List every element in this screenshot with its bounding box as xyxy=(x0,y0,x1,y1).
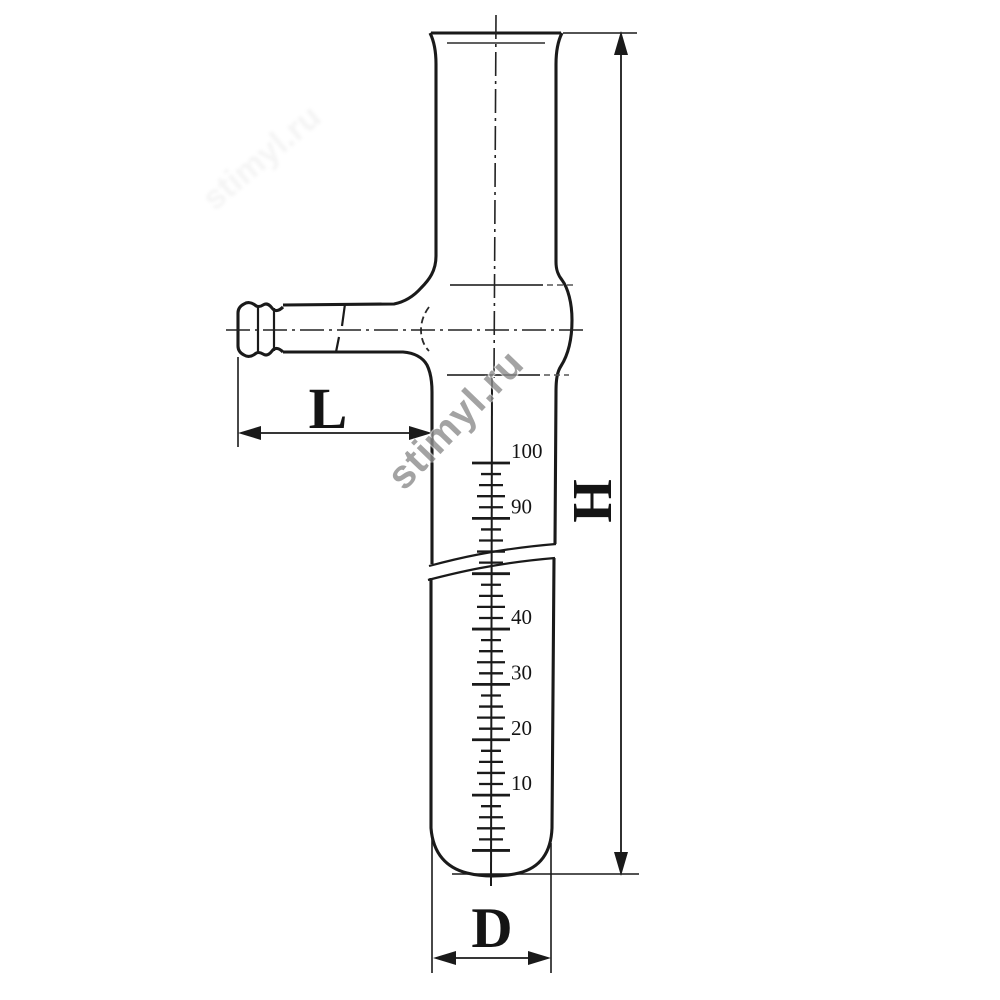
scale-tick-label: 30 xyxy=(511,660,532,684)
graduation-scale: 1009040302010 xyxy=(472,439,543,850)
h-arrowhead-down-icon xyxy=(614,852,628,876)
l-arrowhead-left-icon xyxy=(238,426,261,440)
vertical-centerline xyxy=(494,15,496,378)
d-arrowhead-right-icon xyxy=(528,951,551,965)
scale-tick-label: 20 xyxy=(511,716,532,740)
diameter-dimension-label: D xyxy=(471,897,512,960)
scale-tick-label: 40 xyxy=(511,605,532,629)
sidearm-intersection-curve xyxy=(421,307,429,351)
tube-left-wall-and-sidearm-top xyxy=(283,33,436,305)
l-arrowhead-right-icon xyxy=(409,426,432,440)
sidearm-joint-line xyxy=(336,304,345,352)
length-dimension-label: L xyxy=(309,376,348,441)
d-arrowhead-left-icon xyxy=(433,951,456,965)
scale-tick-label: 90 xyxy=(511,494,532,518)
scale-stem-line xyxy=(491,378,492,886)
tube-right-wall-with-bulge xyxy=(555,33,572,544)
technical-drawing-canvas: H L D 1009040302010 stimyl.ru stimyl.ru xyxy=(0,0,1000,1000)
scale-tick-label: 10 xyxy=(511,771,532,795)
scale-tick-label: 100 xyxy=(511,439,543,463)
height-dimension-label: H xyxy=(562,479,624,523)
h-arrowhead-up-icon xyxy=(614,31,628,55)
glassware-diagram: H L D 1009040302010 xyxy=(0,0,1000,1000)
sidearm-bottom-and-tube-left-wall xyxy=(283,352,432,564)
